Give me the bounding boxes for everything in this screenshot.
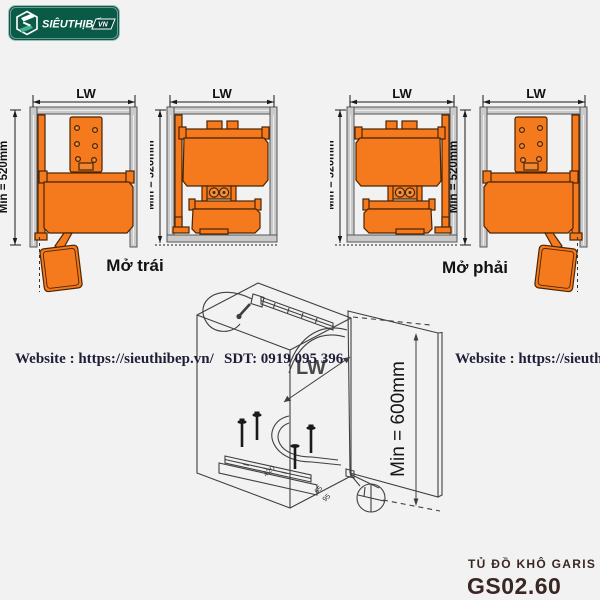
top-rail: [203, 292, 333, 331]
width-dim-label: LW: [392, 86, 412, 101]
watermark-website-left: Website : https://sieuthibep.vn/: [15, 351, 214, 368]
sieuthibep-logo: SIÊUTHỊBẾP VN: [8, 5, 120, 41]
width-dim-label: LW: [76, 86, 96, 101]
height-dim-label: Min = 520mm: [0, 141, 10, 214]
height-dim-label: Min = 520mm: [450, 141, 460, 214]
caption-open-right: Mở phải: [415, 258, 535, 278]
width-dim-label: LW: [526, 86, 546, 101]
lift-mechanism-closed: [355, 115, 451, 234]
width-dim-label: LW: [212, 86, 232, 101]
mounting-bolts: [237, 413, 315, 469]
iso-rail-dim-label: 420: [261, 463, 276, 478]
hinge-detail-circle: [350, 474, 385, 512]
watermark-phone: SDT: 0919 095 396: [224, 351, 343, 368]
isometric-installation-drawing: LW Min = 600mm 420 65 95: [183, 273, 453, 528]
logo-vn-badge: VN: [92, 19, 115, 29]
caption-open-left: Mở trái: [75, 256, 195, 276]
height-dim-label: Min = 520mm: [330, 140, 337, 210]
product-model: GS02.60: [467, 573, 561, 600]
product-name: TỦ ĐỒ KHÔ GARIS: [468, 557, 596, 571]
iso-dim-a-label: 65: [314, 485, 325, 495]
iso-door-height-label: Min = 600mm: [388, 361, 409, 477]
logo-tld-text: VN: [98, 22, 109, 29]
height-dim-label: Min = 520mm: [150, 140, 157, 210]
watermark-website-right: Website : https://sieuthib: [455, 351, 600, 368]
lift-mechanism-closed: [173, 115, 269, 234]
iso-dim-b-label: 95: [322, 493, 333, 503]
